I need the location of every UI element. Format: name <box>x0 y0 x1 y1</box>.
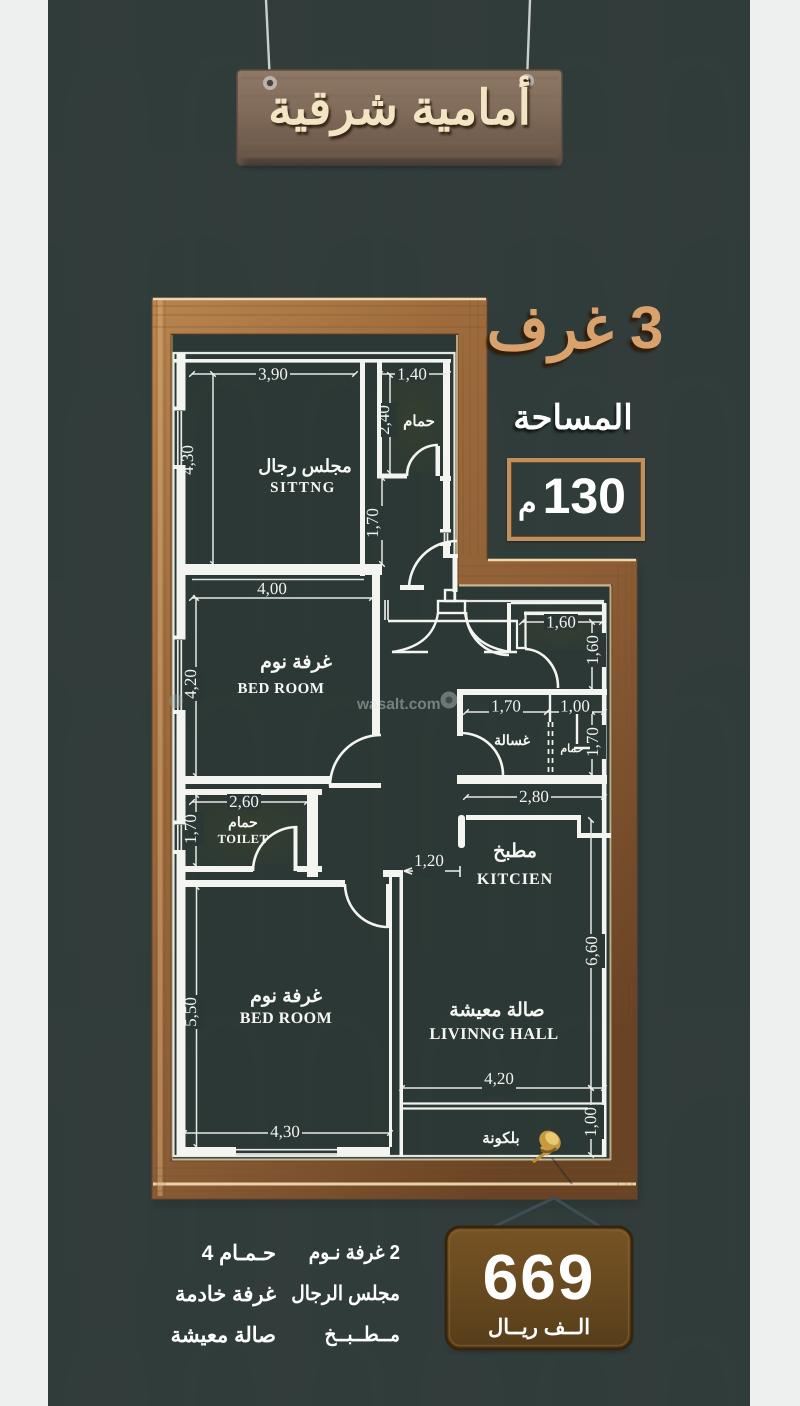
svg-text:2,80: 2,80 <box>519 787 549 806</box>
svg-text:حمام: حمام <box>228 814 258 831</box>
svg-text:1,70: 1,70 <box>583 727 602 757</box>
svg-text:حمام: حمام <box>403 413 435 430</box>
svg-text:1,70: 1,70 <box>181 814 200 844</box>
svg-text:مجلس رجال: مجلس رجال <box>258 456 352 477</box>
svg-text:6,60: 6,60 <box>582 936 601 966</box>
svg-text:1,60: 1,60 <box>583 635 602 665</box>
svg-text:1,70: 1,70 <box>363 508 382 538</box>
svg-text:حمام: حمام <box>560 743 584 755</box>
svg-text:4,00: 4,00 <box>257 579 287 598</box>
svg-text:5,50: 5,50 <box>181 997 200 1027</box>
svg-text:2,60: 2,60 <box>229 792 259 811</box>
svg-text:غرفة نوم: غرفة نوم <box>250 986 322 1007</box>
svg-text:1,60: 1,60 <box>546 613 576 632</box>
svg-text:1,70: 1,70 <box>491 697 521 716</box>
svg-text:مطبخ: مطبخ <box>493 841 537 862</box>
svg-text:wasalt.com: wasalt.com <box>356 696 441 713</box>
svg-text:بلكونة: بلكونة <box>482 1130 519 1147</box>
svg-text:4,30: 4,30 <box>178 445 197 475</box>
svg-text:1,00: 1,00 <box>560 697 590 716</box>
svg-text:KITCIEN: KITCIEN <box>477 871 553 888</box>
svg-text:TOILET: TOILET <box>218 832 269 846</box>
svg-text:غرفة نوم: غرفة نوم <box>260 652 332 673</box>
svg-text:SITTNG: SITTNG <box>270 480 336 496</box>
svg-text:1,20: 1,20 <box>414 851 444 870</box>
svg-text:3,90: 3,90 <box>258 365 288 384</box>
svg-text:1,40: 1,40 <box>397 365 427 384</box>
svg-text:4,20: 4,20 <box>181 669 200 699</box>
svg-text:BED ROOM: BED ROOM <box>238 681 325 697</box>
svg-text:صالة معيشة: صالة معيشة <box>449 1000 544 1021</box>
svg-text:2,40: 2,40 <box>374 405 393 435</box>
svg-text:BED ROOM: BED ROOM <box>240 1010 332 1027</box>
svg-text:غسالة: غسالة <box>494 732 531 748</box>
svg-text:4,30: 4,30 <box>270 1122 300 1141</box>
svg-text:4,20: 4,20 <box>484 1069 514 1088</box>
svg-text:1,00: 1,00 <box>581 1107 600 1137</box>
svg-text:LIVINNG HALL: LIVINNG HALL <box>429 1024 558 1043</box>
